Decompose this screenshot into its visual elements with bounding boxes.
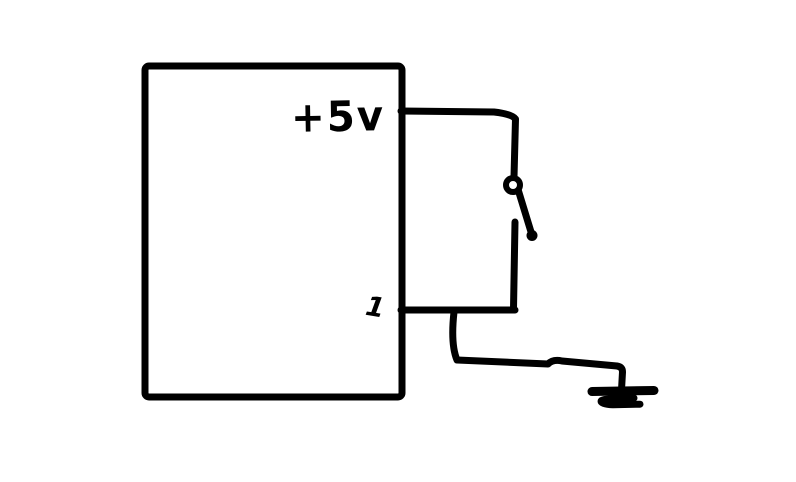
supply-voltage-label: +5v xyxy=(291,91,386,142)
canvas-background xyxy=(0,0,796,482)
ground-bar-top xyxy=(592,391,654,392)
ground-bar-scribble xyxy=(601,398,640,405)
sketch-canvas: +5v 1 xyxy=(0,0,796,482)
switch-lower-contact xyxy=(514,222,516,309)
switch-lever-tip xyxy=(527,230,538,241)
circuit-drawing: +5v 1 xyxy=(0,0,796,482)
